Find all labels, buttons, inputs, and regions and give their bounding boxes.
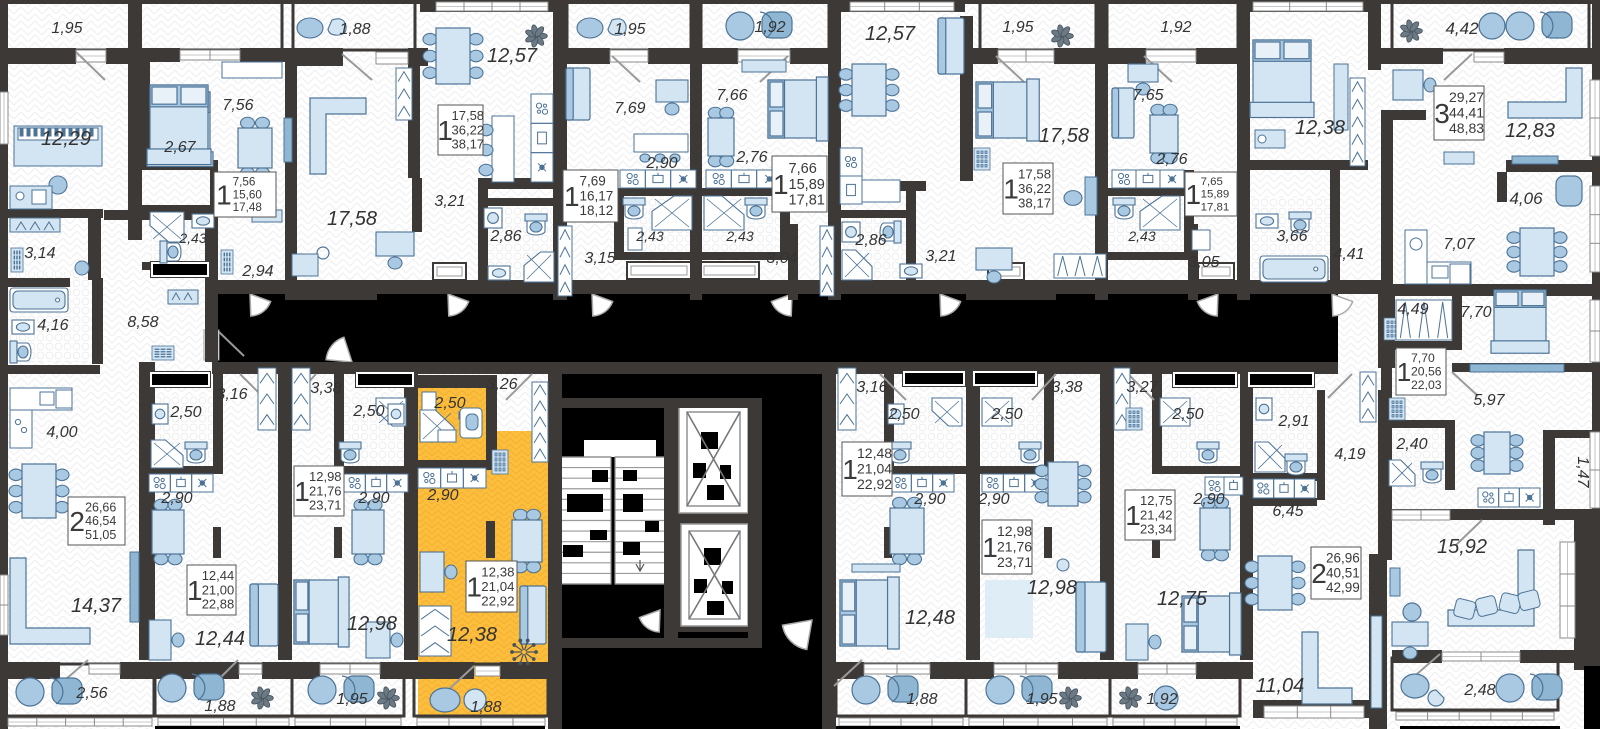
svg-text:12,29: 12,29 — [41, 128, 91, 150]
svg-text:16,17: 16,17 — [580, 188, 614, 203]
svg-text:3,26: 3,26 — [486, 376, 517, 393]
svg-text:7,56: 7,56 — [222, 97, 253, 114]
svg-text:1,92: 1,92 — [1160, 19, 1191, 36]
svg-text:2,50: 2,50 — [990, 406, 1022, 423]
svg-text:2,90: 2,90 — [1192, 491, 1224, 508]
svg-text:12,83: 12,83 — [1505, 120, 1555, 142]
svg-text:17,58: 17,58 — [452, 108, 485, 123]
svg-text:11,04: 11,04 — [1256, 675, 1305, 697]
svg-text:12,75: 12,75 — [1157, 588, 1208, 610]
svg-text:17,81: 17,81 — [1201, 201, 1230, 213]
svg-text:2,76: 2,76 — [735, 149, 767, 166]
svg-text:2,86: 2,86 — [854, 232, 886, 249]
svg-text:22,92: 22,92 — [857, 476, 892, 492]
svg-text:3,27: 3,27 — [1126, 379, 1158, 396]
svg-text:21,76: 21,76 — [997, 539, 1032, 555]
svg-text:38,17: 38,17 — [1018, 195, 1051, 210]
svg-text:7,69: 7,69 — [580, 174, 606, 189]
svg-text:18,12: 18,12 — [580, 203, 614, 218]
svg-text:2,90: 2,90 — [977, 491, 1009, 508]
svg-text:42,99: 42,99 — [1326, 580, 1360, 595]
svg-text:3,38: 3,38 — [310, 380, 341, 397]
svg-text:2,86: 2,86 — [489, 228, 521, 245]
svg-text:40,51: 40,51 — [1326, 565, 1360, 580]
svg-text:12,57: 12,57 — [487, 45, 538, 67]
svg-text:4,19: 4,19 — [1334, 446, 1365, 463]
svg-text:21,42: 21,42 — [1140, 507, 1173, 522]
svg-text:15,60: 15,60 — [233, 188, 263, 201]
svg-text:1: 1 — [1186, 179, 1202, 210]
svg-text:3,21: 3,21 — [434, 193, 465, 210]
svg-text:7,70: 7,70 — [1460, 304, 1491, 321]
svg-text:1,95: 1,95 — [1002, 19, 1033, 36]
svg-text:2,67: 2,67 — [163, 139, 196, 156]
svg-text:12,98: 12,98 — [997, 523, 1032, 539]
svg-text:3,38: 3,38 — [1051, 379, 1082, 396]
svg-text:17,58: 17,58 — [327, 208, 377, 230]
svg-text:5,97: 5,97 — [1473, 392, 1505, 409]
svg-text:17,48: 17,48 — [233, 201, 262, 214]
svg-text:1,95: 1,95 — [336, 691, 367, 708]
svg-text:2: 2 — [69, 506, 85, 537]
svg-text:8,58: 8,58 — [127, 314, 158, 331]
svg-text:15,89: 15,89 — [789, 177, 825, 193]
svg-text:36,22: 36,22 — [452, 122, 485, 137]
svg-text:3,15: 3,15 — [584, 250, 615, 267]
svg-text:20,56: 20,56 — [1411, 364, 1442, 378]
svg-text:1: 1 — [466, 572, 482, 603]
svg-text:22,92: 22,92 — [481, 593, 514, 608]
svg-text:2,90: 2,90 — [160, 490, 192, 507]
svg-text:1,92: 1,92 — [754, 19, 785, 36]
svg-text:12,98: 12,98 — [1027, 577, 1077, 599]
svg-text:3,04: 3,04 — [766, 250, 797, 267]
svg-text:15,92: 15,92 — [1437, 536, 1487, 558]
svg-text:44,41: 44,41 — [1449, 105, 1484, 121]
svg-text:2,43: 2,43 — [1127, 228, 1155, 244]
svg-text:2,50: 2,50 — [433, 395, 465, 412]
svg-text:4,00: 4,00 — [46, 424, 77, 441]
svg-text:1: 1 — [187, 575, 203, 606]
svg-text:1: 1 — [982, 532, 998, 563]
svg-text:23,34: 23,34 — [1140, 522, 1173, 537]
svg-text:12,44: 12,44 — [195, 628, 245, 650]
svg-text:2,76: 2,76 — [1155, 151, 1187, 168]
svg-text:15,89: 15,89 — [1201, 189, 1230, 201]
svg-text:2,91: 2,91 — [1277, 413, 1309, 430]
svg-text:1: 1 — [773, 169, 789, 200]
svg-text:21,04: 21,04 — [481, 579, 514, 594]
svg-text:1,95: 1,95 — [51, 20, 82, 37]
svg-text:7,65: 7,65 — [1132, 87, 1163, 104]
svg-text:2: 2 — [1311, 558, 1327, 589]
svg-text:2,43: 2,43 — [635, 228, 663, 244]
svg-text:1,95: 1,95 — [1026, 691, 1057, 708]
svg-text:17,58: 17,58 — [1039, 125, 1089, 147]
svg-text:7,65: 7,65 — [1201, 176, 1223, 188]
svg-text:3,14: 3,14 — [24, 245, 55, 262]
svg-text:21,04: 21,04 — [857, 461, 892, 477]
svg-text:3,16: 3,16 — [856, 379, 887, 396]
svg-text:2,50: 2,50 — [352, 403, 384, 420]
svg-text:2,90: 2,90 — [426, 487, 458, 504]
svg-text:1,88: 1,88 — [470, 699, 501, 716]
svg-text:2,50: 2,50 — [1171, 406, 1203, 423]
svg-text:23,71: 23,71 — [309, 498, 342, 513]
svg-text:2,43: 2,43 — [178, 230, 206, 246]
svg-text:2,94: 2,94 — [241, 263, 273, 280]
svg-text:4,16: 4,16 — [37, 317, 68, 334]
svg-text:4,06: 4,06 — [1509, 189, 1543, 208]
svg-text:3,05: 3,05 — [1188, 254, 1219, 271]
svg-text:21,00: 21,00 — [202, 582, 235, 597]
svg-text:29,27: 29,27 — [1449, 89, 1484, 105]
svg-text:17,58: 17,58 — [1018, 166, 1051, 181]
svg-text:2,90: 2,90 — [913, 491, 945, 508]
svg-text:14,37: 14,37 — [71, 595, 122, 617]
svg-text:12,38: 12,38 — [481, 564, 514, 579]
svg-text:2,50: 2,50 — [169, 404, 201, 421]
svg-text:7,66: 7,66 — [789, 161, 817, 177]
svg-text:12,48: 12,48 — [857, 445, 892, 461]
svg-text:2,48: 2,48 — [1463, 682, 1495, 699]
svg-text:3,21: 3,21 — [925, 248, 956, 265]
svg-text:7,70: 7,70 — [1411, 351, 1435, 365]
svg-text:26,66: 26,66 — [85, 500, 116, 514]
svg-text:7,69: 7,69 — [614, 100, 645, 117]
svg-text:1: 1 — [1125, 500, 1141, 531]
svg-text:12,48: 12,48 — [905, 607, 955, 629]
svg-text:3: 3 — [1434, 98, 1450, 129]
svg-text:12,44: 12,44 — [202, 568, 235, 583]
svg-text:2,90: 2,90 — [645, 155, 677, 172]
svg-text:2,40: 2,40 — [1395, 436, 1427, 453]
svg-text:2,50: 2,50 — [887, 406, 919, 423]
svg-text:1,47: 1,47 — [1574, 456, 1591, 488]
svg-text:21,76: 21,76 — [309, 483, 342, 498]
svg-text:6,45: 6,45 — [1272, 503, 1303, 520]
svg-text:4,41: 4,41 — [1333, 246, 1364, 263]
svg-text:1,88: 1,88 — [204, 698, 235, 715]
svg-text:4,49: 4,49 — [1397, 301, 1428, 318]
svg-text:1: 1 — [564, 181, 580, 212]
svg-text:12,57: 12,57 — [865, 23, 916, 45]
svg-text:38,17: 38,17 — [452, 137, 485, 152]
svg-text:36,22: 36,22 — [1018, 181, 1051, 196]
svg-text:3,16: 3,16 — [216, 386, 247, 403]
svg-text:1: 1 — [1003, 174, 1019, 205]
svg-text:1: 1 — [842, 454, 858, 485]
svg-text:12,75: 12,75 — [1140, 493, 1173, 508]
svg-text:1: 1 — [1397, 357, 1411, 387]
svg-text:46,54: 46,54 — [85, 514, 116, 528]
svg-text:3,66: 3,66 — [1276, 228, 1307, 245]
svg-text:1,88: 1,88 — [339, 21, 370, 38]
svg-text:22,03: 22,03 — [1411, 378, 1442, 392]
svg-text:48,83: 48,83 — [1449, 120, 1484, 136]
svg-text:1,95: 1,95 — [614, 21, 645, 38]
svg-text:7,07: 7,07 — [1443, 236, 1475, 253]
svg-text:4,42: 4,42 — [1445, 19, 1479, 38]
svg-text:12,38: 12,38 — [1295, 117, 1345, 139]
svg-text:51,05: 51,05 — [85, 528, 116, 542]
svg-text:26,96: 26,96 — [1326, 551, 1360, 566]
svg-text:1,92: 1,92 — [1146, 691, 1177, 708]
svg-text:1: 1 — [294, 476, 310, 507]
svg-text:22,88: 22,88 — [202, 597, 235, 612]
svg-text:7,56: 7,56 — [233, 176, 256, 189]
svg-text:2,56: 2,56 — [75, 685, 107, 702]
svg-text:7,66: 7,66 — [716, 87, 747, 104]
svg-text:23,71: 23,71 — [997, 554, 1032, 570]
svg-text:2,43: 2,43 — [725, 228, 753, 244]
svg-text:12,98: 12,98 — [347, 613, 397, 635]
svg-text:17,81: 17,81 — [789, 193, 825, 209]
svg-text:12,38: 12,38 — [447, 624, 497, 646]
svg-text:1: 1 — [216, 180, 232, 211]
svg-text:2,90: 2,90 — [357, 490, 389, 507]
svg-text:12,98: 12,98 — [309, 469, 342, 484]
svg-text:1,88: 1,88 — [906, 691, 937, 708]
